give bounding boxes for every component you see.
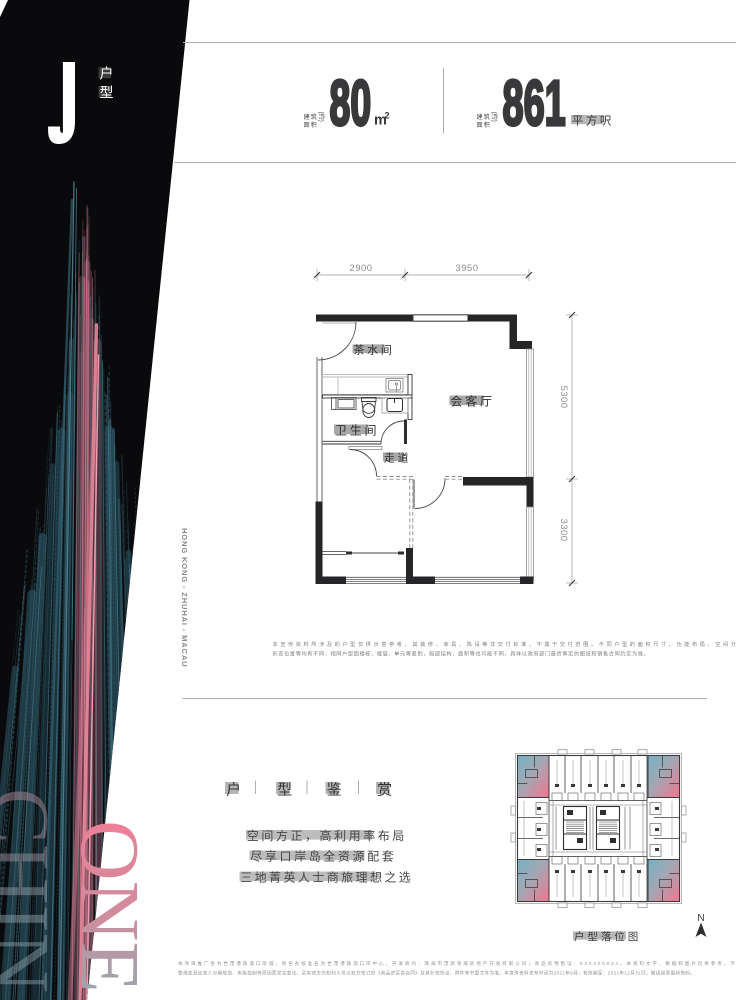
svg-text:型: 型 [277, 782, 295, 799]
svg-text:861: 861 [503, 68, 566, 140]
svg-text:N: N [697, 913, 704, 924]
svg-text:面积: 面积 [477, 121, 491, 129]
svg-text:建筑: 建筑 [477, 113, 491, 121]
svg-text:户: 户 [100, 66, 117, 82]
svg-text:鉴: 鉴 [327, 782, 345, 799]
svg-text:空间方正，高利用率布局: 空间方正，高利用率布局 [247, 828, 407, 843]
svg-text:ONE: ONE [63, 820, 156, 993]
svg-text:三地菁英人士商旅理想之选: 三地菁英人士商旅理想之选 [240, 870, 413, 885]
svg-text:形态位置等均有不同；相同户型因楼栋、楼层、单元等差别，局部结: 形态位置等均有不同；相同户型因楼栋、楼层、单元等差别，局部结构、面积等也可能不同… [273, 650, 650, 658]
svg-text:赏: 赏 [377, 782, 395, 799]
svg-text:面积: 面积 [304, 121, 318, 129]
svg-text:本宣传资料所涉及的户型仅供示意参考，其装修、家具、陈设等非交: 本宣传资料所涉及的户型仅供示意参考，其装修、家具、陈设等非交付标准，不属于交付范… [273, 640, 736, 648]
svg-text:茶水间: 茶水间 [353, 344, 394, 357]
svg-text:CHINA: CHINA [0, 788, 66, 1000]
svg-text:3950: 3950 [455, 263, 478, 274]
svg-text:建筑: 建筑 [304, 113, 318, 121]
svg-text:型: 型 [100, 85, 117, 101]
svg-text:3300: 3300 [558, 518, 569, 541]
svg-text:走道: 走道 [384, 451, 412, 465]
svg-text:80: 80 [330, 69, 372, 140]
svg-text:户型落位图: 户型落位图 [574, 930, 641, 943]
svg-text:平方呎: 平方呎 [572, 114, 614, 128]
svg-text:(约): (约) [491, 112, 499, 122]
svg-text:卫生间: 卫生间 [335, 424, 380, 438]
svg-text:户: 户 [226, 782, 244, 799]
svg-text:2900: 2900 [349, 263, 372, 274]
svg-text:HONG KONG - ZHUHAI - MACAU: HONG KONG - ZHUHAI - MACAU [180, 528, 189, 667]
svg-text:整规定及出卖人分期规划、未能控制等原因而发生变化。买卖双方的: 整规定及出卖人分期规划、未能控制等原因而发生变化。买卖双方的权利义务以双方签订的… [178, 970, 695, 977]
svg-text:本项目推广名为世茂港珠澳口岸城，地名办核准名为世茂港珠澳口岸: 本项目推广名为世茂港珠澳口岸城，地名办核准名为世茂港珠澳口岸中心，开发商为：珠海… [178, 960, 736, 967]
svg-text:5300: 5300 [558, 385, 569, 408]
svg-text:会客厅: 会客厅 [450, 394, 495, 409]
svg-text:(约): (约) [318, 112, 326, 122]
svg-text:2: 2 [385, 111, 390, 121]
svg-text:尽享口岸岛全资源配套: 尽享口岸岛全资源配套 [250, 849, 396, 864]
